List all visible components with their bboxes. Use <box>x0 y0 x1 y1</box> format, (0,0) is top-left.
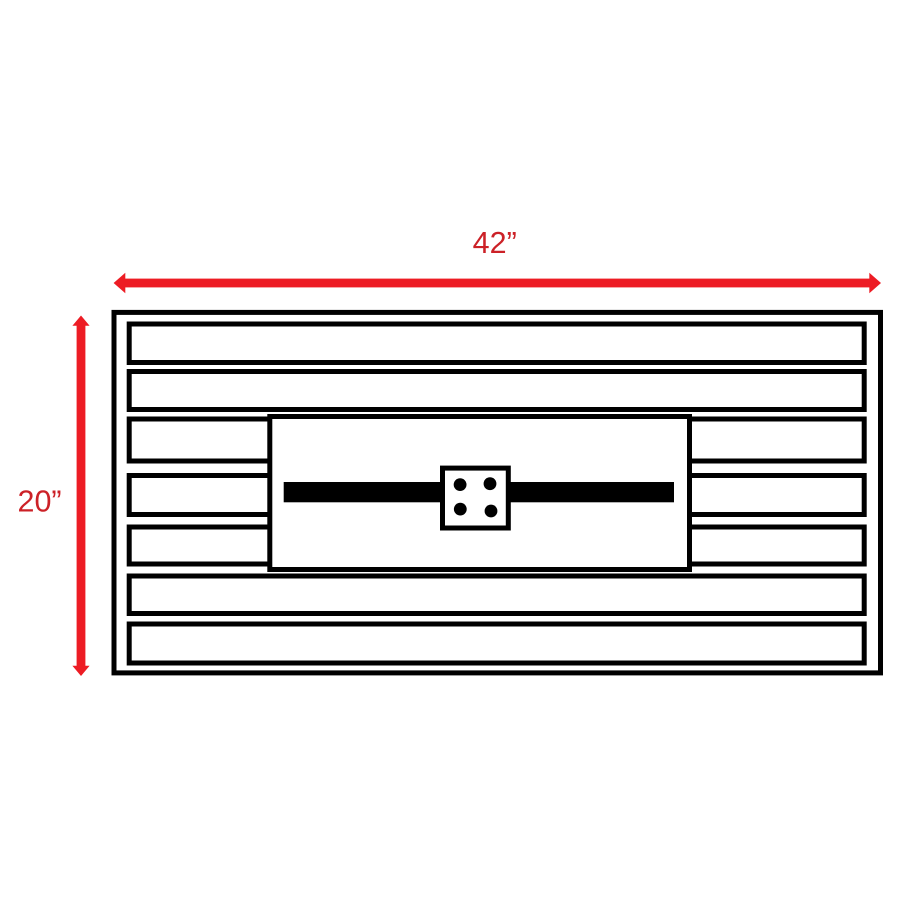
svg-text:20”: 20” <box>18 485 62 519</box>
svg-text:42”: 42” <box>473 226 517 260</box>
